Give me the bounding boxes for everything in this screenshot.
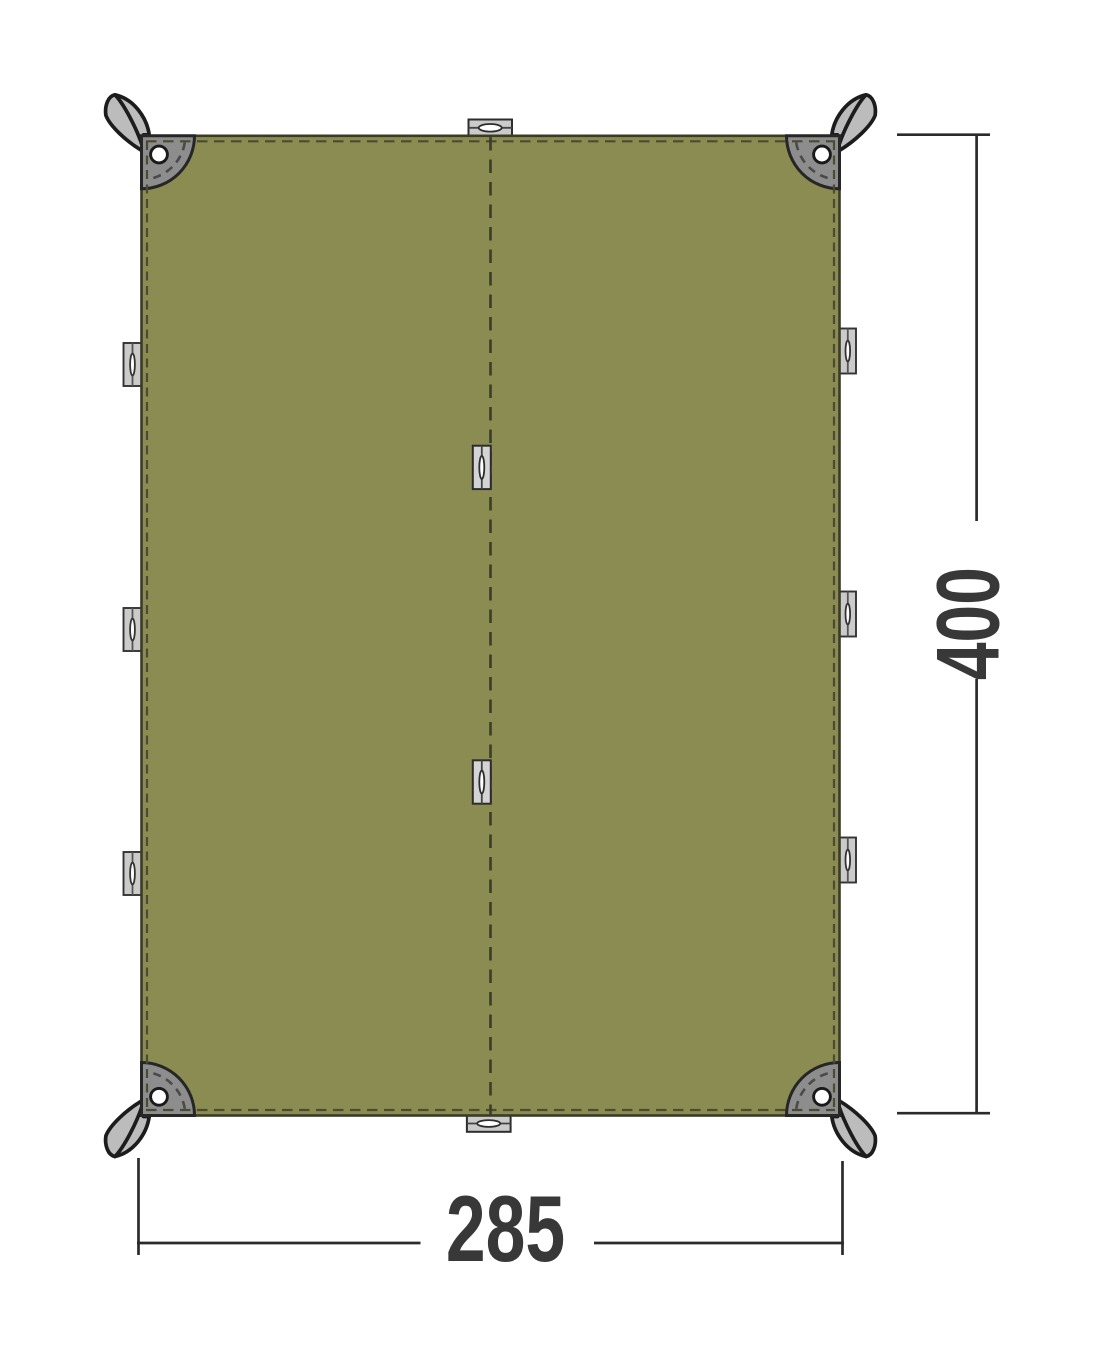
svg-text:400: 400 [917, 567, 1017, 680]
svg-text:285: 285 [446, 1177, 565, 1281]
